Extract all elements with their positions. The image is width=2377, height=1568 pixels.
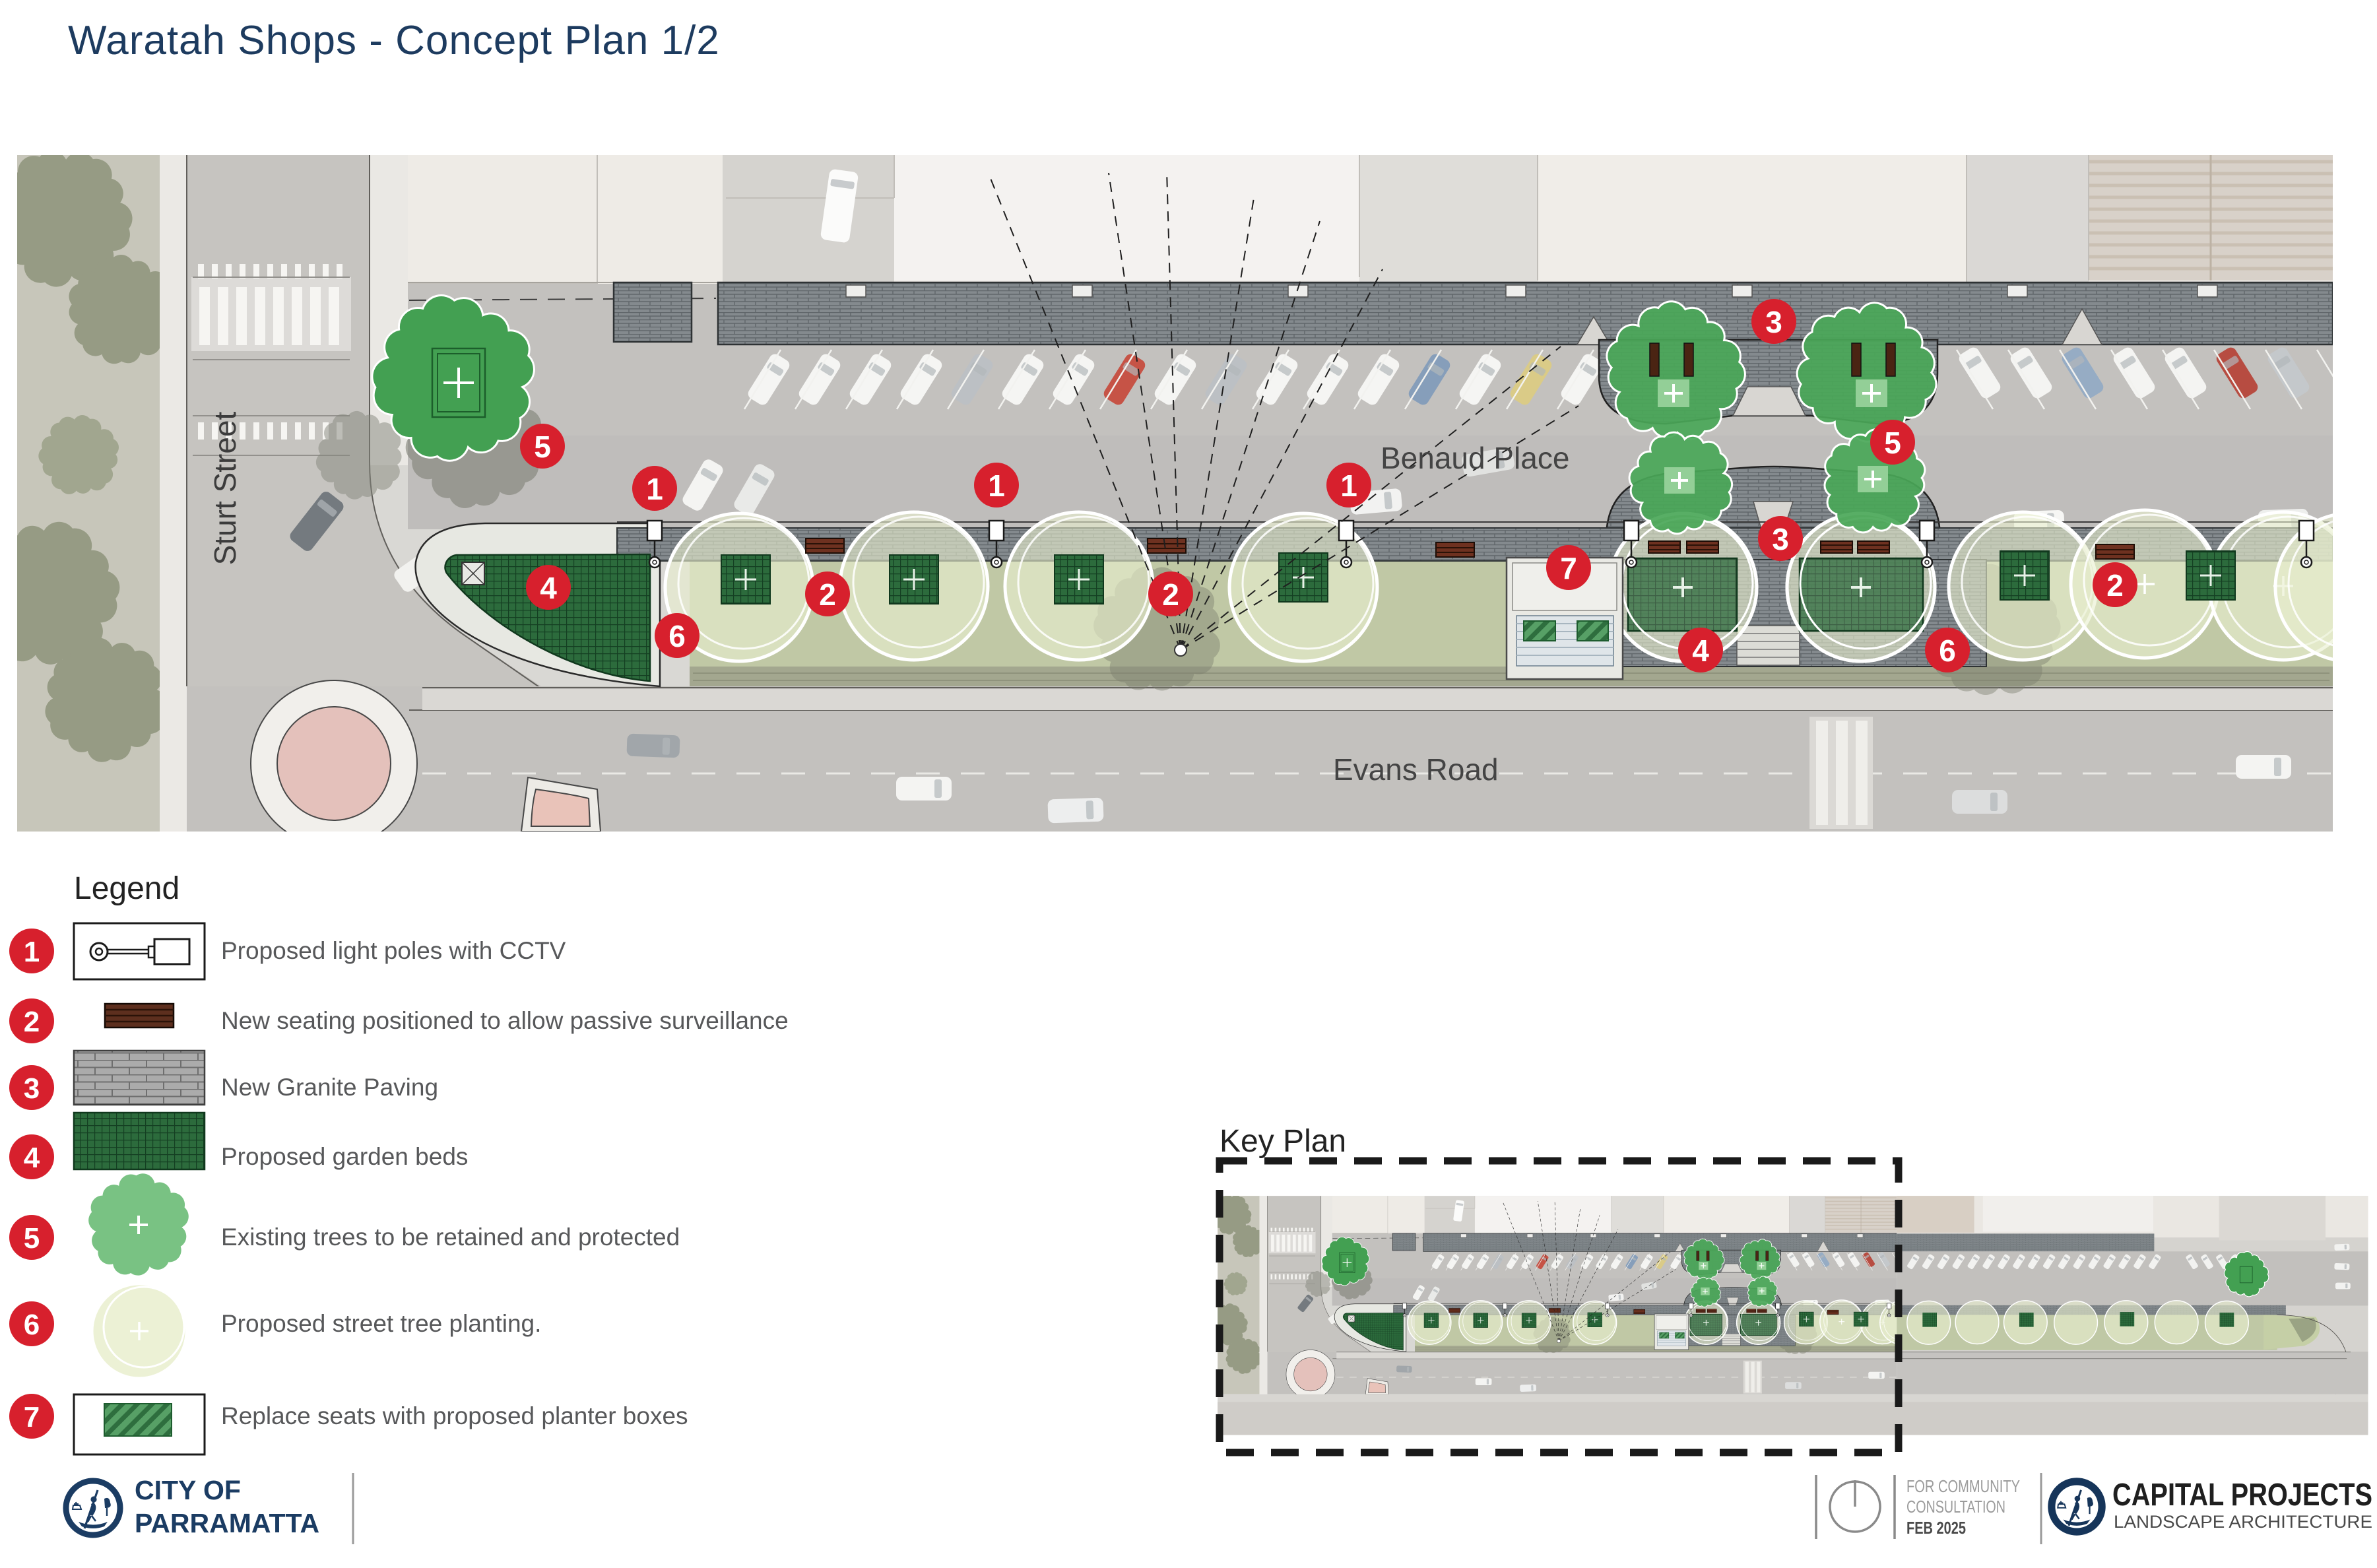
svg-text:7: 7 bbox=[1560, 551, 1577, 585]
svg-text:Proposed street tree planting.: Proposed street tree planting. bbox=[221, 1310, 541, 1337]
svg-text:New seating positioned to allo: New seating positioned to allow passive … bbox=[221, 1007, 789, 1034]
svg-text:1: 1 bbox=[24, 936, 40, 968]
svg-text:Replace seats with proposed pl: Replace seats with proposed planter boxe… bbox=[221, 1402, 688, 1429]
svg-text:LANDSCAPE ARCHITECTURE: LANDSCAPE ARCHITECTURE bbox=[2114, 1512, 2372, 1532]
svg-text:Legend: Legend bbox=[74, 871, 179, 906]
svg-text:4: 4 bbox=[540, 571, 557, 605]
svg-text:Proposed garden beds: Proposed garden beds bbox=[221, 1143, 468, 1170]
svg-text:FEB 2025: FEB 2025 bbox=[1906, 1518, 1966, 1538]
svg-text:2: 2 bbox=[24, 1006, 40, 1038]
svg-text:PARRAMATTA: PARRAMATTA bbox=[135, 1508, 319, 1538]
svg-text:3: 3 bbox=[24, 1072, 40, 1105]
svg-text:2: 2 bbox=[1162, 577, 1179, 612]
svg-text:6: 6 bbox=[24, 1309, 40, 1341]
svg-text:3: 3 bbox=[1772, 522, 1789, 556]
svg-text:Waratah Shops - Concept Plan 1: Waratah Shops - Concept Plan 1/2 bbox=[68, 18, 720, 63]
svg-text:7: 7 bbox=[24, 1401, 40, 1433]
svg-text:4: 4 bbox=[1692, 634, 1709, 668]
svg-text:2: 2 bbox=[2106, 568, 2124, 603]
svg-text:5: 5 bbox=[24, 1222, 40, 1255]
svg-text:Existing trees to be retained: Existing trees to be retained and protec… bbox=[221, 1224, 680, 1251]
svg-text:Benaud Place: Benaud Place bbox=[1381, 441, 1569, 475]
svg-text:CAPITAL PROJECTS: CAPITAL PROJECTS bbox=[2112, 1478, 2372, 1513]
svg-text:4: 4 bbox=[24, 1142, 40, 1174]
svg-text:Key Plan: Key Plan bbox=[1220, 1124, 1346, 1159]
svg-text:New Granite Paving: New Granite Paving bbox=[221, 1074, 438, 1101]
svg-text:1: 1 bbox=[988, 469, 1005, 503]
svg-text:2: 2 bbox=[819, 577, 836, 612]
svg-text:3: 3 bbox=[1765, 305, 1782, 339]
svg-text:1: 1 bbox=[646, 472, 663, 506]
svg-text:6: 6 bbox=[1939, 634, 1956, 668]
svg-text:6: 6 bbox=[668, 619, 686, 653]
svg-text:CITY OF: CITY OF bbox=[135, 1475, 241, 1505]
svg-text:1: 1 bbox=[1340, 469, 1357, 503]
svg-text:FOR COMMUNITY: FOR COMMUNITY bbox=[1906, 1476, 2020, 1496]
svg-text:CONSULTATION: CONSULTATION bbox=[1906, 1497, 2005, 1517]
svg-text:Sturt Street: Sturt Street bbox=[208, 411, 242, 565]
svg-text:Evans Road: Evans Road bbox=[1333, 752, 1499, 787]
svg-text:5: 5 bbox=[1884, 426, 1901, 460]
svg-text:Proposed light poles with CCTV: Proposed light poles with CCTV bbox=[221, 937, 566, 964]
svg-text:5: 5 bbox=[534, 430, 551, 464]
